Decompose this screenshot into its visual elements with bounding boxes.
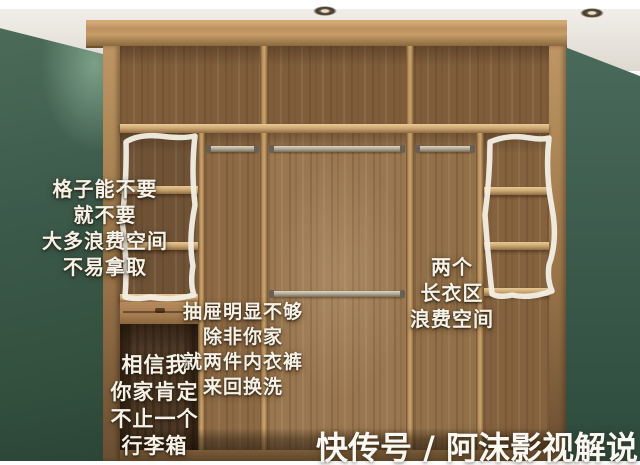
note-line: 就不要 [30, 202, 180, 228]
note-line: 你家肯定 [92, 379, 217, 406]
hanging-rod-lower [271, 291, 403, 297]
note-line: 除非你家 [178, 325, 308, 350]
upper-cabinet-divider [406, 46, 414, 124]
right-wall [558, 38, 640, 461]
note-line: 格子能不要 [30, 176, 180, 202]
downlight-icon [580, 8, 604, 18]
note-line: 不易拿取 [30, 254, 180, 280]
drawer-handle-notch [155, 308, 165, 313]
upper-cabinet-row [120, 46, 549, 124]
wardrobe-divider [260, 133, 268, 452]
shelf [484, 187, 549, 195]
grid-note: 格子能不要 就不要 大多浪费空间 不易拿取 [30, 176, 180, 280]
watermark: 快传号 / 阿沫影视解说 [308, 423, 638, 465]
long-hang-note: 两个 长衣区 浪费空间 [398, 254, 506, 332]
downlight-icon [313, 6, 337, 16]
note-line: 两个 [398, 254, 506, 280]
note-line: 抽屉明显不够 [178, 300, 308, 325]
note-line: 浪费空间 [398, 306, 506, 332]
wardrobe-cornice [86, 20, 567, 48]
annotated-wardrobe-photo: 格子能不要 就不要 大多浪费空间 不易拿取 抽屉明显不够 除非你家 就两件内衣裤… [0, 0, 640, 465]
note-line: 相信我 [92, 352, 217, 379]
hanging-rod [208, 146, 257, 152]
note-line: 长衣区 [398, 280, 506, 306]
note-line: 不止一个 [92, 406, 217, 433]
hanging-rod [417, 146, 473, 152]
luggage-note: 相信我 你家肯定 不止一个 行李箱 [92, 352, 217, 460]
note-line: 行李箱 [92, 433, 217, 460]
upper-row-bottom-shelf [120, 124, 549, 133]
upper-cabinet-divider [260, 46, 268, 124]
shelf [484, 242, 549, 250]
note-line: 大多浪费空间 [30, 228, 180, 254]
wardrobe-right-side-panel [549, 46, 566, 461]
hanging-rod [271, 146, 403, 152]
